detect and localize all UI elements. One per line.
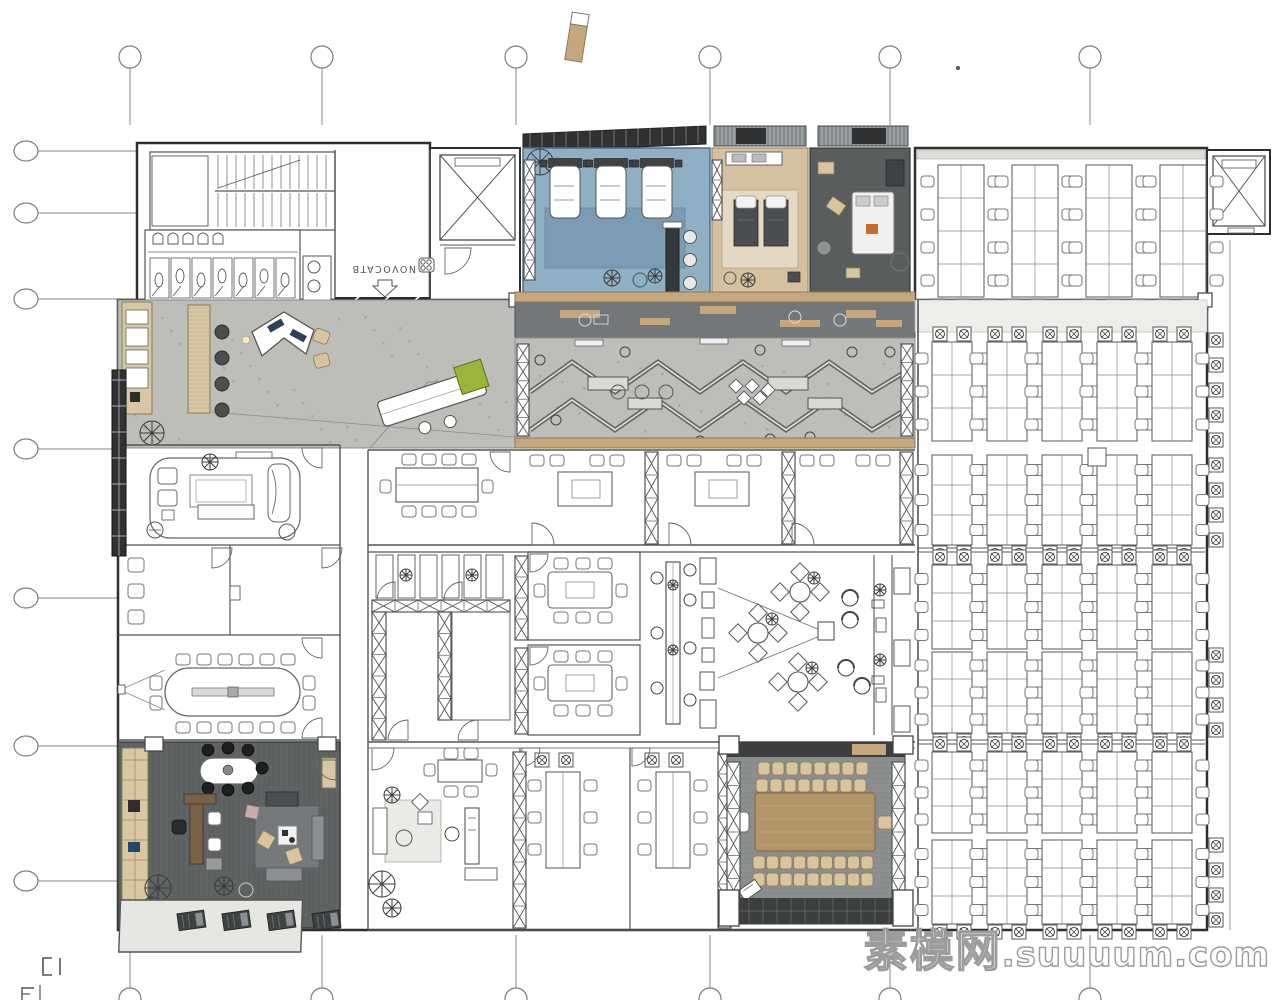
zigzag-collab-zone [515,338,915,448]
conference-hall [719,736,913,926]
executive-office [118,737,341,952]
floor-plan-drawing: NOVOCATB [0,0,1276,1000]
nap-lounge-dark [810,148,910,298]
floor-plan: NOVOCATB 素模网.suuuum.com [0,0,1276,1000]
storefront-brand-text: NOVOCATB [351,263,416,274]
nap-lounge-tan [712,148,808,298]
watermark-domain: .suuuum.com [1002,935,1270,975]
watermark-site-name: 素模网 [864,926,1002,977]
watermark: 素模网.suuuum.com [864,930,1270,974]
elevator-northeast [1213,156,1265,233]
corner-marks [22,958,60,1000]
